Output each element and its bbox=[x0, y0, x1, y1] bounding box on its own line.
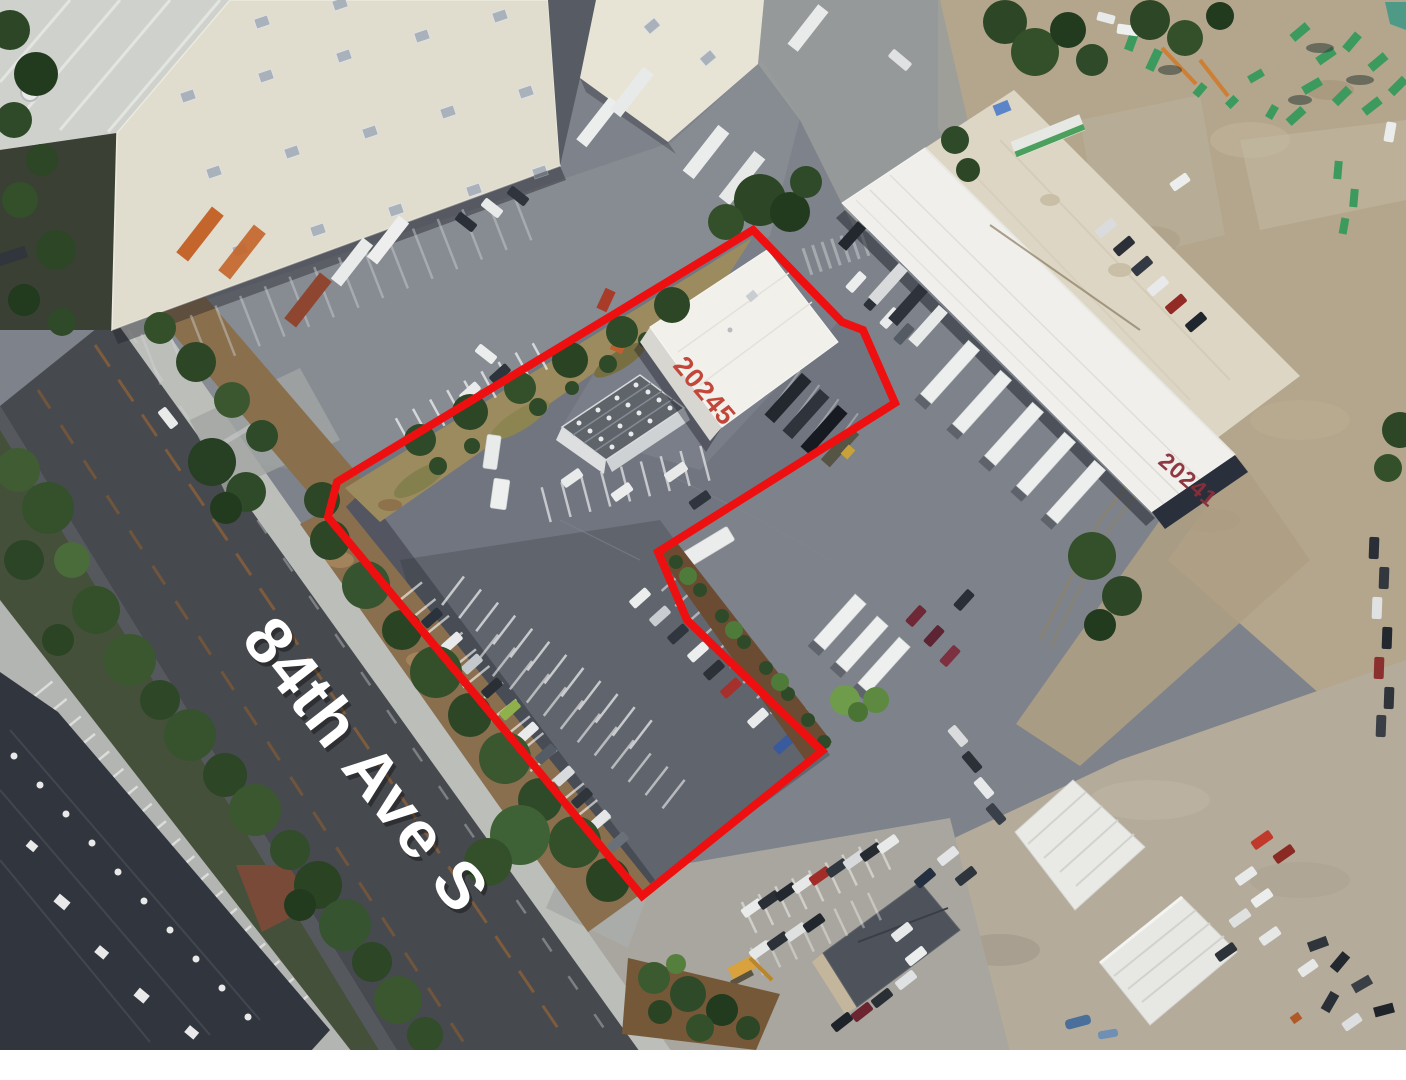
photo-bottom-margin bbox=[0, 1050, 1406, 1080]
aerial-imagery: 84th Ave S 84th Ave S 20245 20241 bbox=[0, 0, 1406, 1080]
aerial-property-map: 84th Ave S 84th Ave S 20245 20241 bbox=[0, 0, 1406, 1080]
